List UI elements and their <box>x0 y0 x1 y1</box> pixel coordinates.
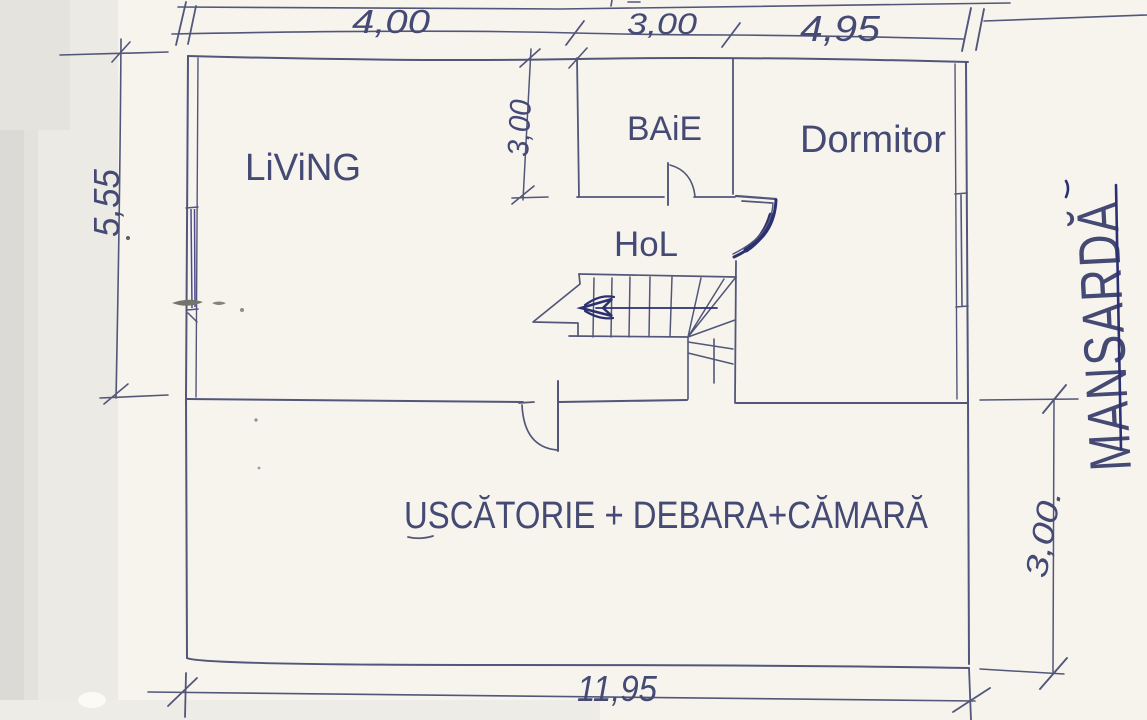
svg-text:Dormitor: Dormitor <box>800 119 946 161</box>
svg-text:USCĂTORIE + DEBARA+CĂMARĂ: USCĂTORIE + DEBARA+CĂMARĂ <box>404 494 929 537</box>
svg-text:11,95: 11,95 <box>577 668 658 709</box>
svg-text:HoL: HoL <box>614 225 678 264</box>
svg-text:4,95: 4,95 <box>800 8 881 49</box>
svg-text:LiViNG: LiViNG <box>245 147 361 189</box>
svg-text:3,00: 3,00 <box>502 98 538 157</box>
svg-text:5,55: 5,55 <box>86 168 127 237</box>
svg-text:BAiE: BAiE <box>627 110 702 148</box>
svg-text:3,00: 3,00 <box>627 8 697 41</box>
svg-text:4,00: 4,00 <box>352 3 431 40</box>
